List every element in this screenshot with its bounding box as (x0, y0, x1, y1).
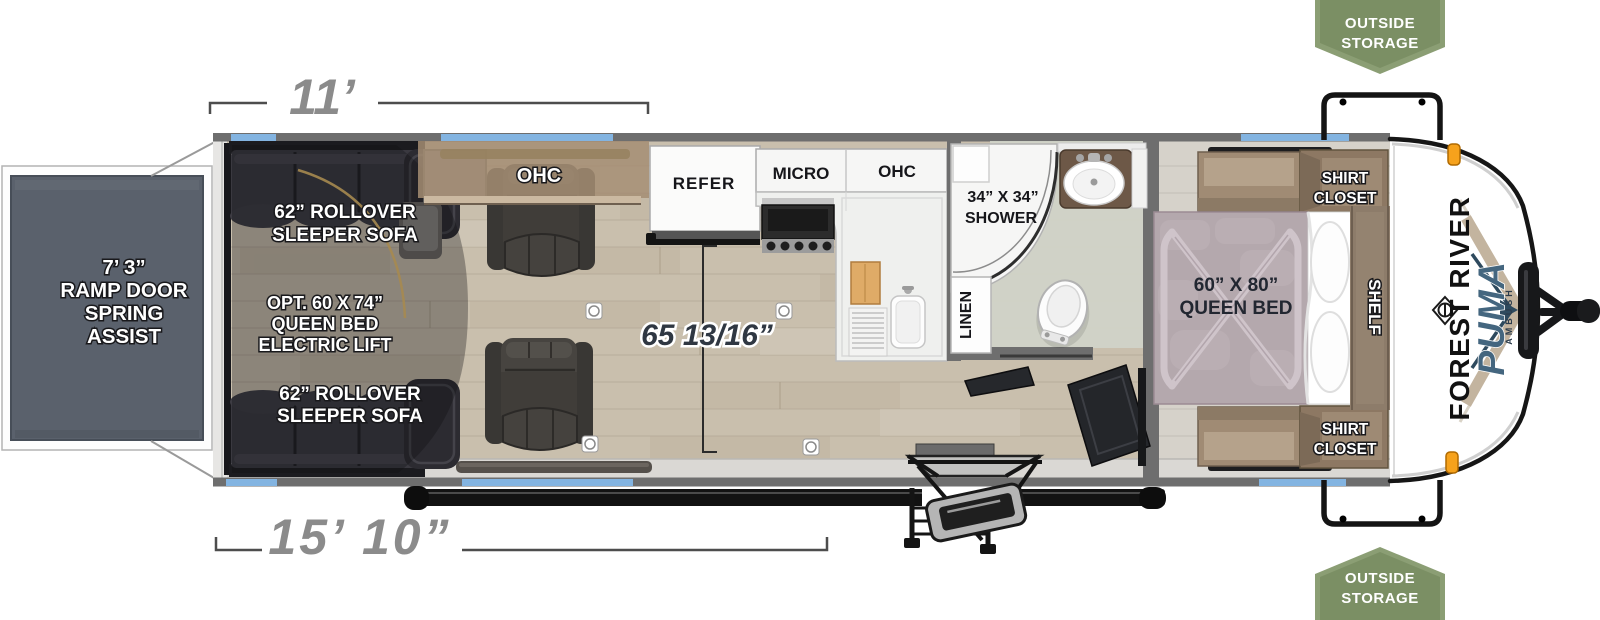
svg-text:SHIRT: SHIRT (1322, 170, 1369, 187)
svg-text:CLOSET: CLOSET (1314, 441, 1377, 458)
svg-text:62” ROLLOVER: 62” ROLLOVER (274, 202, 416, 223)
svg-text:LINEN: LINEN (958, 291, 975, 339)
svg-text:SLEEPER SOFA: SLEEPER SOFA (272, 225, 418, 246)
svg-text:7’ 3”: 7’ 3” (102, 256, 145, 279)
svg-text:65 13/16”: 65 13/16” (641, 319, 773, 352)
svg-text:15’ 10”: 15’ 10” (268, 509, 451, 565)
svg-text:STORAGE: STORAGE (1341, 590, 1418, 607)
svg-text:SLEEPER SOFA: SLEEPER SOFA (277, 406, 423, 427)
svg-text:OUTSIDE: OUTSIDE (1345, 15, 1415, 32)
svg-text:REFER: REFER (673, 174, 736, 193)
svg-text:ASSIST: ASSIST (87, 325, 162, 348)
svg-text:11’: 11’ (289, 69, 356, 125)
svg-text:OHC: OHC (878, 162, 916, 181)
svg-text:RAMP DOOR: RAMP DOOR (60, 279, 187, 302)
svg-text:OHC: OHC (517, 165, 561, 187)
svg-text:SHELF: SHELF (1365, 279, 1384, 335)
svg-text:MICRO: MICRO (773, 164, 830, 183)
svg-text:STORAGE: STORAGE (1341, 35, 1418, 52)
svg-text:ELECTRIC LIFT: ELECTRIC LIFT (259, 335, 392, 355)
svg-text:SPRING: SPRING (85, 302, 164, 325)
svg-text:SHOWER: SHOWER (965, 210, 1037, 227)
svg-text:34” X 34”: 34” X 34” (967, 189, 1038, 206)
svg-text:QUEEN BED: QUEEN BED (271, 314, 378, 334)
svg-text:AMBUSH: AMBUSH (1504, 287, 1514, 345)
svg-text:62” ROLLOVER: 62” ROLLOVER (279, 384, 421, 405)
svg-text:OUTSIDE: OUTSIDE (1345, 570, 1415, 587)
svg-text:60” X 80”: 60” X 80” (1194, 275, 1279, 296)
svg-text:CLOSET: CLOSET (1314, 190, 1377, 207)
svg-text:SHIRT: SHIRT (1322, 421, 1369, 438)
svg-text:QUEEN BED: QUEEN BED (1180, 298, 1293, 319)
svg-text:OPT. 60 X 74”: OPT. 60 X 74” (267, 293, 383, 313)
